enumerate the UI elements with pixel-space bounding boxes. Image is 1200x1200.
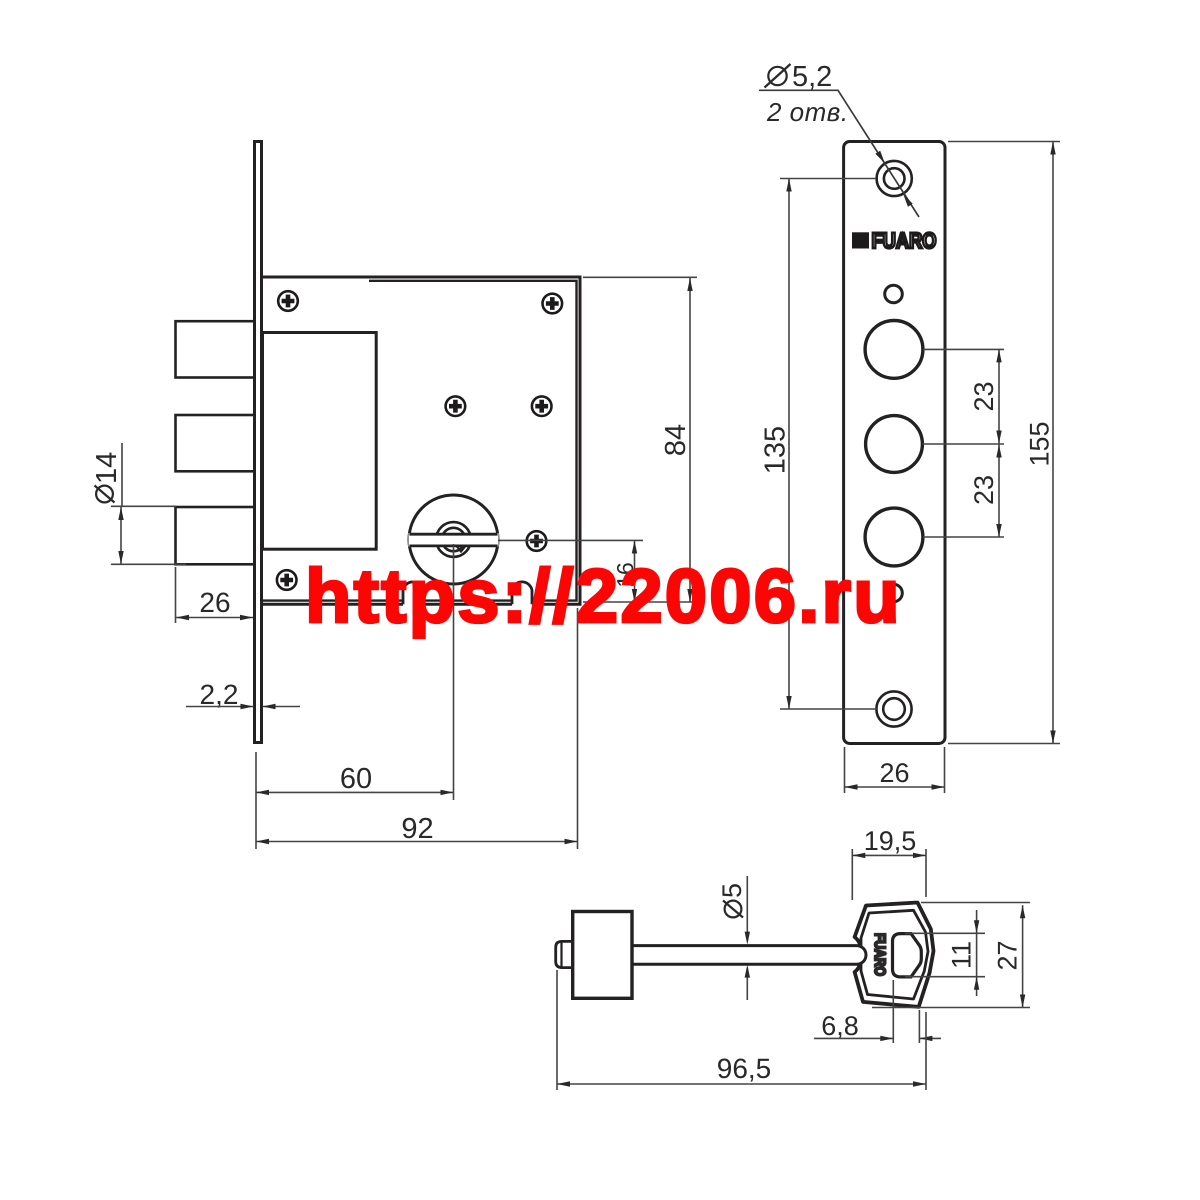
svg-text:60: 60 <box>340 763 372 795</box>
svg-text:2,2: 2,2 <box>200 679 239 710</box>
svg-text:5: 5 <box>717 883 747 898</box>
svg-text:2 отв.: 2 отв. <box>766 97 849 127</box>
svg-text:5,2: 5,2 <box>792 61 832 93</box>
svg-text:FUARO: FUARO <box>871 933 888 976</box>
svg-text:FUARO: FUARO <box>872 228 937 253</box>
svg-text:27: 27 <box>993 940 1023 970</box>
svg-text:92: 92 <box>401 813 433 845</box>
svg-text:https://22006.ru: https://22006.ru <box>305 554 902 639</box>
svg-text:84: 84 <box>660 424 692 456</box>
svg-text:11: 11 <box>947 941 977 969</box>
svg-text:14: 14 <box>91 452 123 484</box>
svg-text:19,5: 19,5 <box>864 826 917 856</box>
svg-text:96,5: 96,5 <box>717 1053 772 1084</box>
svg-text:26: 26 <box>879 758 909 788</box>
svg-text:23: 23 <box>969 381 999 411</box>
svg-text:135: 135 <box>760 426 792 474</box>
svg-text:6,8: 6,8 <box>821 1011 859 1041</box>
svg-text:155: 155 <box>1025 421 1055 466</box>
svg-text:23: 23 <box>969 475 999 505</box>
svg-text:26: 26 <box>199 587 230 618</box>
